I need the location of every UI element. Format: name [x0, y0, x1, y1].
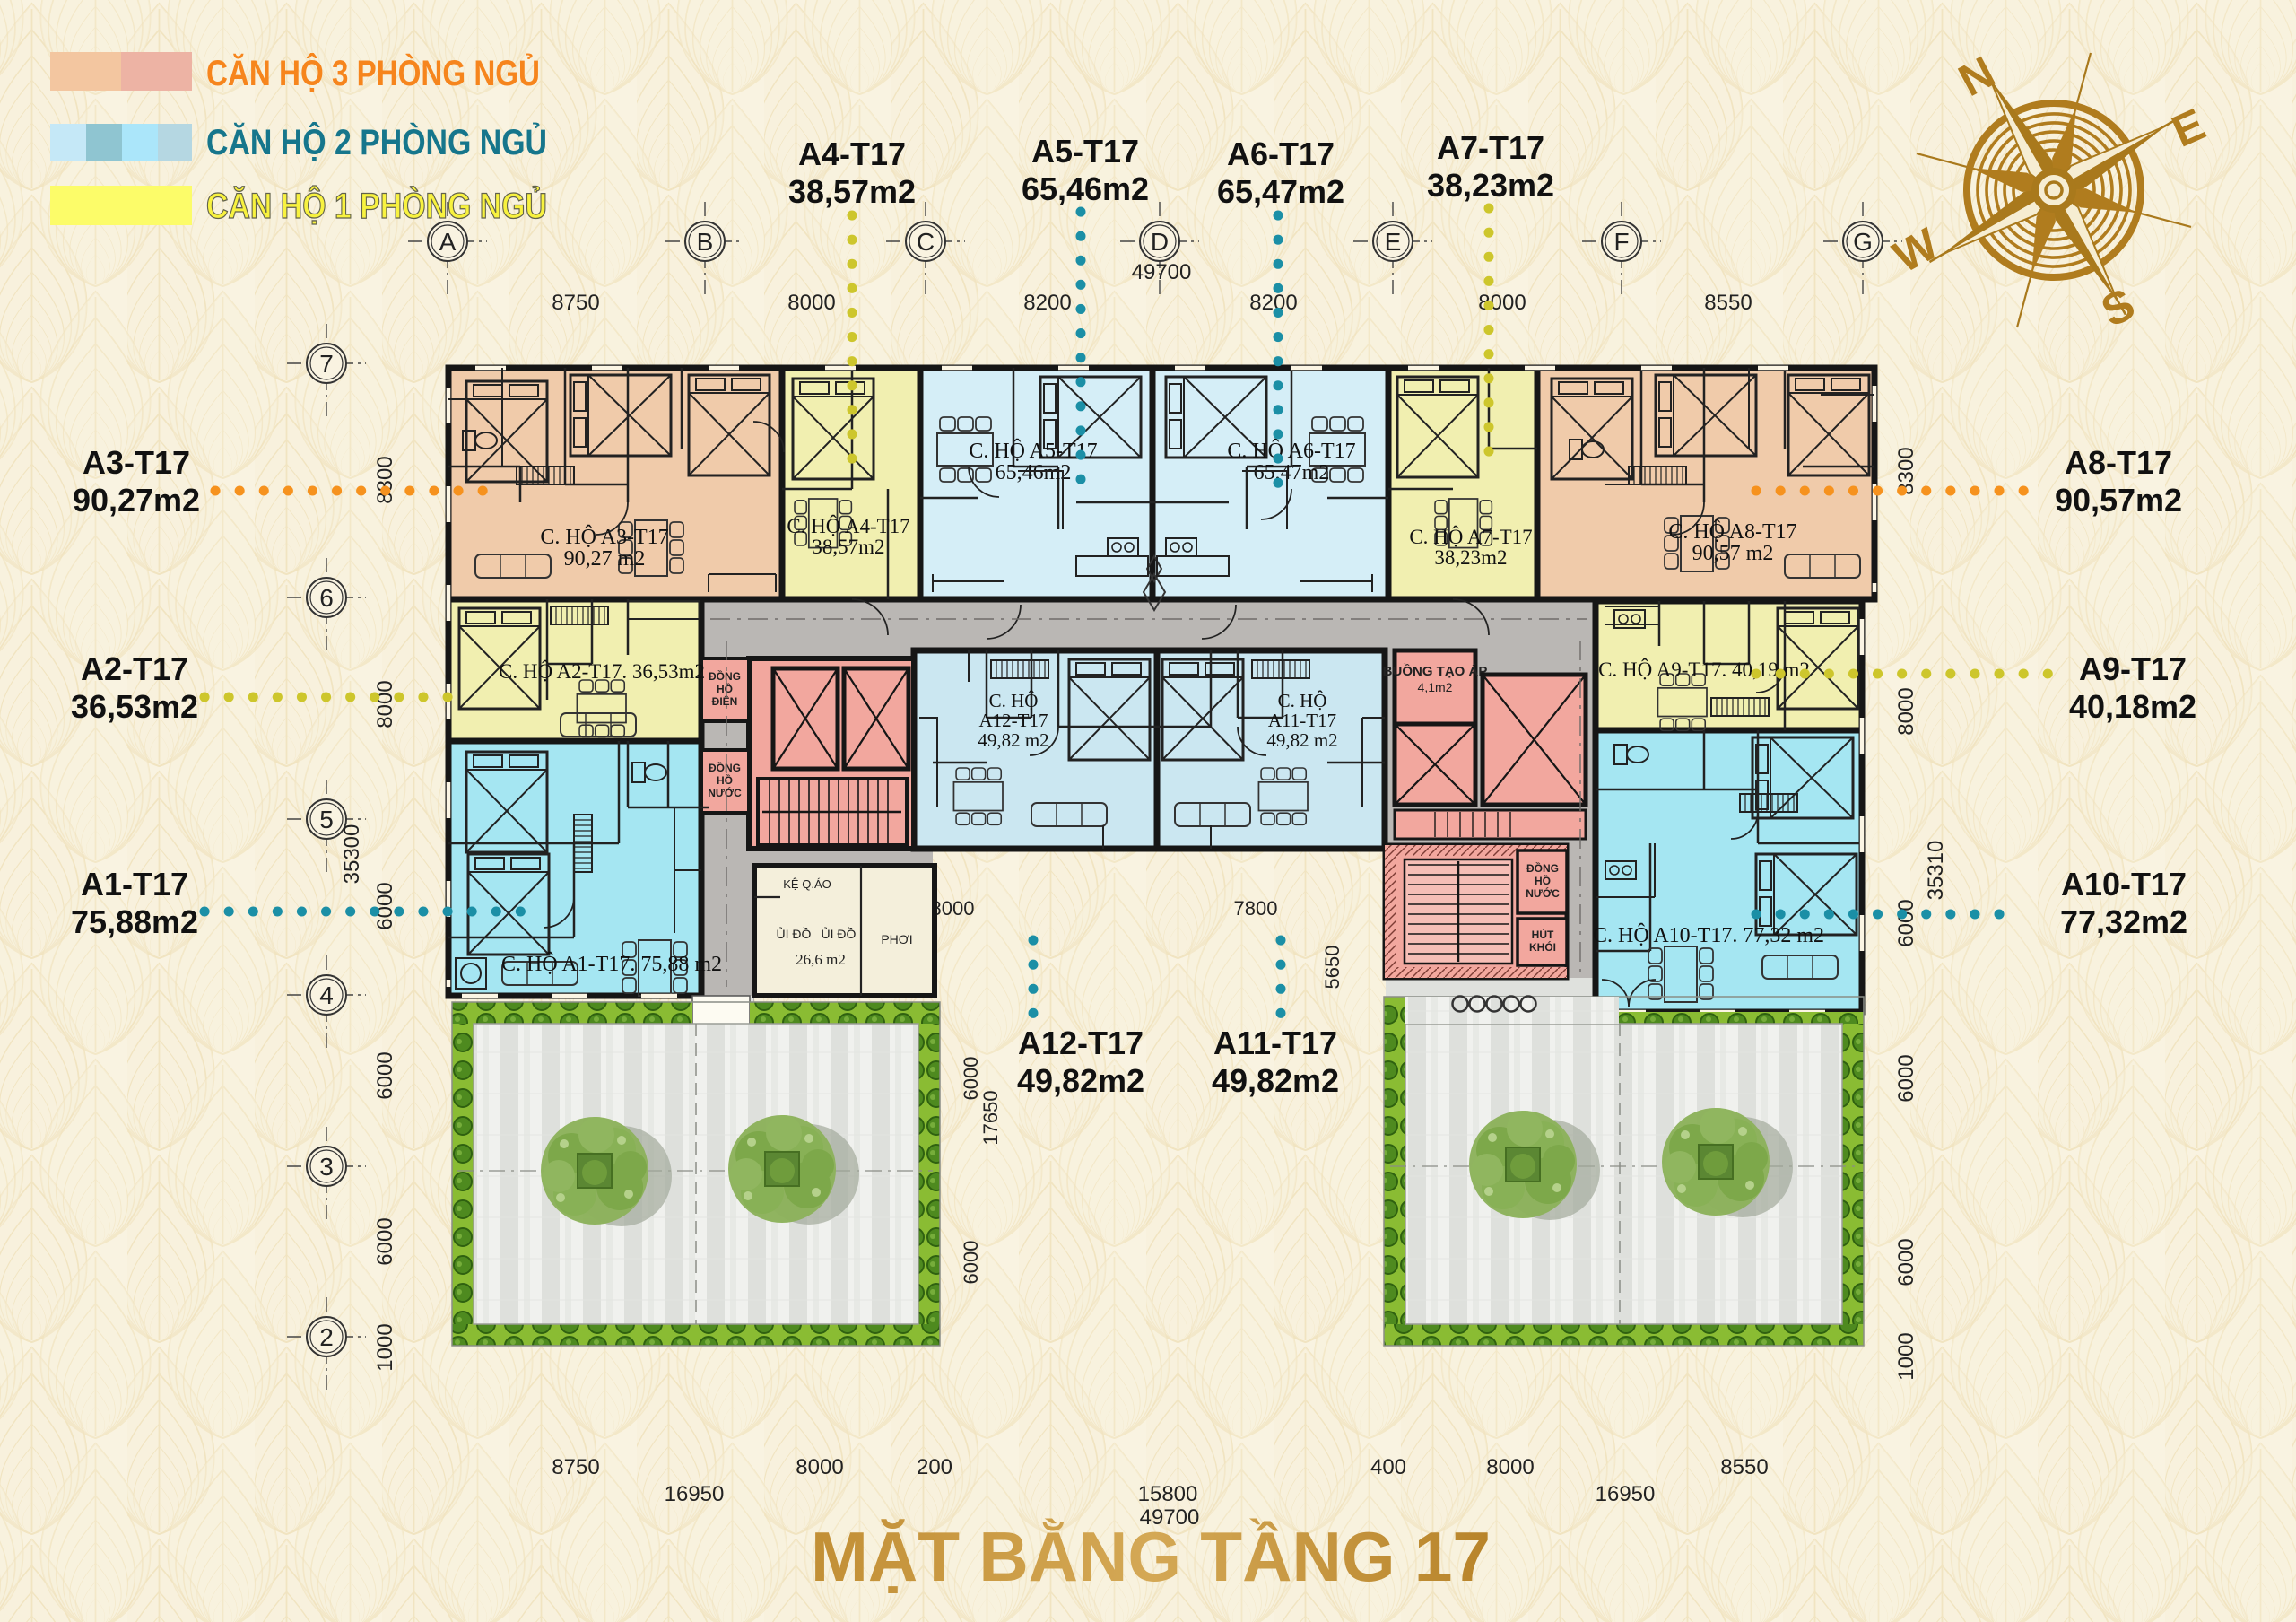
svg-text:A11-T17: A11-T17 [1213, 1025, 1337, 1061]
svg-text:A1-T17: A1-T17 [81, 866, 188, 903]
svg-text:7800: 7800 [1234, 897, 1278, 920]
svg-text:F: F [1613, 228, 1629, 256]
svg-text:C. HỘ A1-T17. 75,88 m2: C. HỘ A1-T17. 75,88 m2 [501, 952, 722, 976]
svg-text:6000: 6000 [1894, 899, 1918, 946]
svg-text:HỒ: HỒ [1535, 874, 1551, 887]
svg-text:8750: 8750 [552, 291, 599, 315]
svg-text:A2-T17: A2-T17 [81, 650, 188, 687]
svg-text:A5-T17: A5-T17 [1031, 133, 1139, 170]
svg-text:49700: 49700 [1132, 260, 1192, 284]
svg-text:6000: 6000 [373, 882, 397, 929]
svg-text:90,57m2: 90,57m2 [2055, 482, 2182, 519]
svg-text:77,32m2: 77,32m2 [2060, 903, 2187, 940]
svg-text:17650: 17650 [979, 1090, 1002, 1145]
svg-text:CĂN HỘ 3 PHÒNG NGỦ: CĂN HỘ 3 PHÒNG NGỦ [206, 52, 540, 93]
svg-text:MẶT BẰNG TẦNG 17: MẶT BẰNG TẦNG 17 [811, 1517, 1491, 1596]
svg-text:A10-T17: A10-T17 [2061, 866, 2187, 903]
svg-text:A: A [439, 228, 457, 256]
svg-text:C. HỘ: C. HỘ [1278, 690, 1327, 711]
svg-text:6000: 6000 [373, 1051, 397, 1099]
svg-text:8300: 8300 [1894, 447, 1918, 494]
svg-text:HÚT: HÚT [1532, 928, 1554, 941]
svg-text:ĐỒNG: ĐỒNG [709, 669, 741, 683]
svg-text:C. HỘ: C. HỘ [989, 690, 1039, 711]
svg-text:36,53m2: 36,53m2 [71, 688, 198, 725]
svg-text:HỒ: HỒ [717, 682, 733, 695]
svg-text:90,57 m2: 90,57 m2 [1692, 542, 1774, 565]
svg-text:5650: 5650 [1321, 946, 1344, 990]
svg-text:90,27m2: 90,27m2 [73, 482, 200, 519]
svg-text:38,23m2: 38,23m2 [1434, 546, 1507, 569]
svg-text:5: 5 [319, 806, 334, 833]
svg-text:16950: 16950 [1596, 1482, 1656, 1506]
svg-text:C. HỘ A4-T17: C. HỘ A4-T17 [787, 514, 909, 537]
svg-text:38,23m2: 38,23m2 [1427, 167, 1554, 204]
svg-text:8750: 8750 [552, 1455, 599, 1479]
svg-text:CĂN HỘ 2 PHÒNG NGỦ: CĂN HỘ 2 PHÒNG NGỦ [206, 121, 547, 162]
svg-text:C. HỘ A6-T17: C. HỘ A6-T17 [1227, 439, 1355, 463]
svg-text:4: 4 [319, 981, 334, 1009]
svg-text:C: C [917, 228, 935, 256]
svg-text:ỦI ĐỒ: ỦI ĐỒ [822, 926, 857, 941]
svg-text:16950: 16950 [665, 1482, 725, 1506]
svg-text:NƯỚC: NƯỚC [708, 786, 742, 799]
svg-text:PHƠI: PHƠI [881, 932, 912, 946]
svg-text:90,27 m2: 90,27 m2 [564, 547, 646, 571]
svg-text:6000: 6000 [1894, 1054, 1918, 1102]
svg-text:8300: 8300 [373, 456, 397, 503]
svg-text:BUỒNG TẠO ÁP: BUỒNG TẠO ÁP [1383, 663, 1488, 679]
svg-text:C. HỘ A7-T17: C. HỘ A7-T17 [1409, 525, 1532, 548]
svg-text:G: G [1853, 228, 1873, 256]
svg-text:8550: 8550 [1704, 291, 1752, 315]
svg-text:A12-T17: A12-T17 [1018, 1025, 1144, 1061]
svg-text:C. HỘ A3-T17: C. HỘ A3-T17 [540, 525, 668, 549]
svg-text:15800: 15800 [1138, 1482, 1198, 1506]
svg-text:6000: 6000 [373, 1217, 397, 1265]
svg-text:7: 7 [319, 350, 334, 378]
svg-text:49,82 m2: 49,82 m2 [978, 729, 1048, 751]
svg-text:8000: 8000 [796, 1455, 843, 1479]
svg-text:65,46m2: 65,46m2 [1022, 170, 1149, 207]
svg-text:A12-T17: A12-T17 [979, 710, 1048, 731]
svg-text:35310: 35310 [1924, 841, 1948, 901]
svg-text:A3-T17: A3-T17 [83, 444, 190, 481]
svg-text:49,82 m2: 49,82 m2 [1266, 729, 1337, 751]
svg-text:8000: 8000 [1486, 1455, 1534, 1479]
svg-text:C. HỘ A8-T17: C. HỘ A8-T17 [1668, 519, 1796, 544]
svg-text:26,6 m2: 26,6 m2 [796, 951, 846, 968]
svg-text:NƯỚC: NƯỚC [1526, 886, 1560, 900]
svg-text:75,88m2: 75,88m2 [71, 903, 198, 940]
svg-text:A6-T17: A6-T17 [1227, 135, 1335, 172]
svg-text:8000: 8000 [373, 680, 397, 728]
svg-text:C. HỘ A2-T17. 36,53m2: C. HỘ A2-T17. 36,53m2 [499, 659, 705, 683]
svg-text:1000: 1000 [1894, 1332, 1918, 1380]
svg-text:A8-T17: A8-T17 [2065, 444, 2172, 481]
svg-text:E: E [1385, 228, 1402, 256]
svg-text:HỒ: HỒ [717, 773, 733, 787]
svg-text:6: 6 [319, 584, 334, 612]
svg-text:38,57m2: 38,57m2 [788, 173, 916, 210]
svg-text:400: 400 [1370, 1455, 1406, 1479]
svg-text:35300: 35300 [340, 824, 364, 885]
svg-text:A11-T17: A11-T17 [1268, 710, 1336, 731]
svg-text:8000: 8000 [1894, 687, 1918, 735]
svg-text:40,18m2: 40,18m2 [2069, 688, 2196, 725]
svg-text:49,82m2: 49,82m2 [1212, 1062, 1339, 1099]
svg-text:ỦI ĐỒ: ỦI ĐỒ [777, 926, 812, 941]
svg-text:3: 3 [319, 1153, 334, 1181]
svg-text:6000: 6000 [960, 1241, 982, 1285]
svg-text:B: B [697, 228, 714, 256]
svg-text:ĐỒNG: ĐỒNG [709, 761, 741, 774]
svg-text:KHÓI: KHÓI [1529, 940, 1556, 954]
svg-text:65,47m2: 65,47m2 [1217, 173, 1344, 210]
svg-text:6000: 6000 [1894, 1238, 1918, 1286]
svg-text:65,46m2: 65,46m2 [996, 461, 1072, 484]
svg-text:ĐIỆN: ĐIỆN [712, 694, 738, 708]
svg-text:C. HỘ A10-T17. 77,32 m2: C. HỘ A10-T17. 77,32 m2 [1593, 923, 1824, 947]
svg-text:1000: 1000 [373, 1323, 397, 1371]
svg-text:65,47m2: 65,47m2 [1254, 461, 1330, 484]
svg-text:8200: 8200 [1023, 291, 1071, 315]
svg-text:38,57m2: 38,57m2 [812, 536, 884, 558]
svg-text:8000: 8000 [787, 291, 835, 315]
svg-text:CĂN HỘ 1 PHÒNG NGỦ: CĂN HỘ 1 PHÒNG NGỦ [206, 185, 547, 226]
svg-text:KỆ Q.ÁO: KỆ Q.ÁO [783, 877, 831, 891]
svg-text:ĐỒNG: ĐỒNG [1526, 861, 1559, 875]
svg-text:4,1m2: 4,1m2 [1418, 680, 1453, 694]
svg-text:49,82m2: 49,82m2 [1017, 1062, 1144, 1099]
svg-text:8550: 8550 [1720, 1455, 1768, 1479]
svg-text:2: 2 [319, 1323, 334, 1351]
svg-text:A4-T17: A4-T17 [798, 135, 906, 172]
svg-text:A7-T17: A7-T17 [1437, 129, 1544, 166]
svg-text:200: 200 [917, 1455, 952, 1479]
svg-text:A9-T17: A9-T17 [2079, 650, 2187, 687]
svg-text:D: D [1151, 228, 1169, 256]
